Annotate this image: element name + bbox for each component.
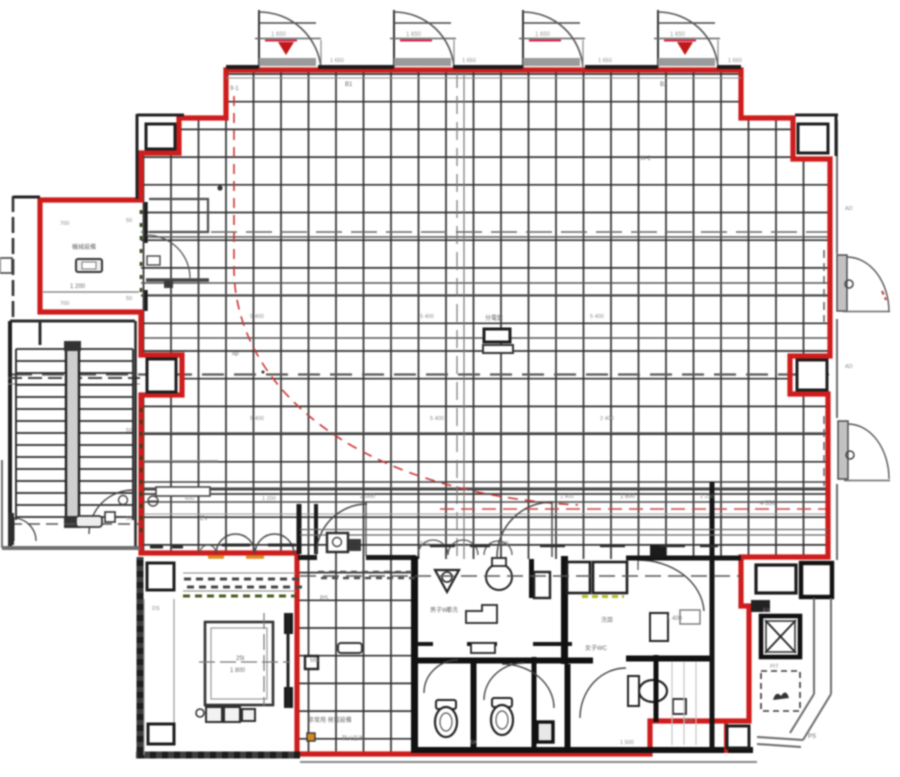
svg-text:545: 545 <box>420 541 429 547</box>
svg-text:1 200: 1 200 <box>70 284 86 290</box>
svg-text:2 250: 2 250 <box>700 494 714 500</box>
svg-text:1 400: 1 400 <box>667 616 683 622</box>
svg-text:SK: SK <box>470 740 478 746</box>
svg-text:up: up <box>232 351 239 357</box>
svg-text:機械設備: 機械設備 <box>72 243 96 251</box>
svg-text:分電盤: 分電盤 <box>485 314 503 322</box>
svg-text:1 650: 1 650 <box>598 58 612 64</box>
svg-text:PS: PS <box>808 734 816 740</box>
svg-text:1 500: 1 500 <box>620 740 634 746</box>
svg-text:25t: 25t <box>236 656 245 662</box>
svg-text:1 650: 1 650 <box>271 32 287 38</box>
svg-text:700: 700 <box>60 221 69 227</box>
svg-text:700: 700 <box>60 301 69 307</box>
svg-text:545: 545 <box>500 541 509 547</box>
svg-text:EV: EV <box>763 608 771 614</box>
svg-text:1 650: 1 650 <box>670 32 686 38</box>
svg-text:600: 600 <box>185 496 194 502</box>
svg-text:DS: DS <box>152 606 160 612</box>
svg-text:洗面: 洗面 <box>601 616 613 624</box>
svg-text:9-1: 9-1 <box>230 86 239 92</box>
svg-text:B2: B2 <box>660 82 668 88</box>
svg-text:MB: MB <box>310 658 319 664</box>
svg-text:AD: AD <box>845 206 853 212</box>
svg-text:800: 800 <box>684 718 693 724</box>
svg-text:B1: B1 <box>345 82 353 88</box>
svg-text:AD: AD <box>845 364 853 370</box>
svg-text:PIT: PIT <box>770 664 779 670</box>
svg-text:2 000: 2 000 <box>360 494 376 500</box>
svg-text:W-2: W-2 <box>640 156 652 162</box>
svg-text:EV: EV <box>200 516 208 522</box>
svg-text:1 800: 1 800 <box>620 494 636 500</box>
svg-text:5 400: 5 400 <box>420 314 434 320</box>
svg-text:5 400: 5 400 <box>250 314 264 320</box>
svg-text:女子WC: 女子WC <box>585 644 608 652</box>
svg-text:4 550: 4 550 <box>760 501 776 507</box>
svg-text:50: 50 <box>126 296 132 302</box>
svg-text:1 200: 1 200 <box>262 496 276 502</box>
svg-text:非常用 発電設備: 非常用 発電設備 <box>308 716 352 724</box>
svg-text:1 650: 1 650 <box>330 58 344 64</box>
svg-text:50: 50 <box>126 428 132 434</box>
svg-text:手洗: 手洗 <box>446 606 458 614</box>
svg-text:1 800: 1 800 <box>230 668 246 674</box>
svg-text:50: 50 <box>126 218 132 224</box>
svg-text:PS: PS <box>320 596 328 602</box>
svg-text:1 650: 1 650 <box>406 32 422 38</box>
svg-text:1 650: 1 650 <box>462 58 476 64</box>
svg-text:50: 50 <box>126 516 132 522</box>
svg-text:防火区画: 防火区画 <box>342 734 364 742</box>
svg-text:5 400: 5 400 <box>250 416 264 422</box>
svg-text:5 400: 5 400 <box>430 416 444 422</box>
svg-text:2 400: 2 400 <box>600 416 614 422</box>
svg-text:5 400: 5 400 <box>590 314 604 320</box>
svg-text:1 650: 1 650 <box>535 32 551 38</box>
svg-text:1 400: 1 400 <box>560 494 574 500</box>
svg-text:1 650: 1 650 <box>728 58 742 64</box>
